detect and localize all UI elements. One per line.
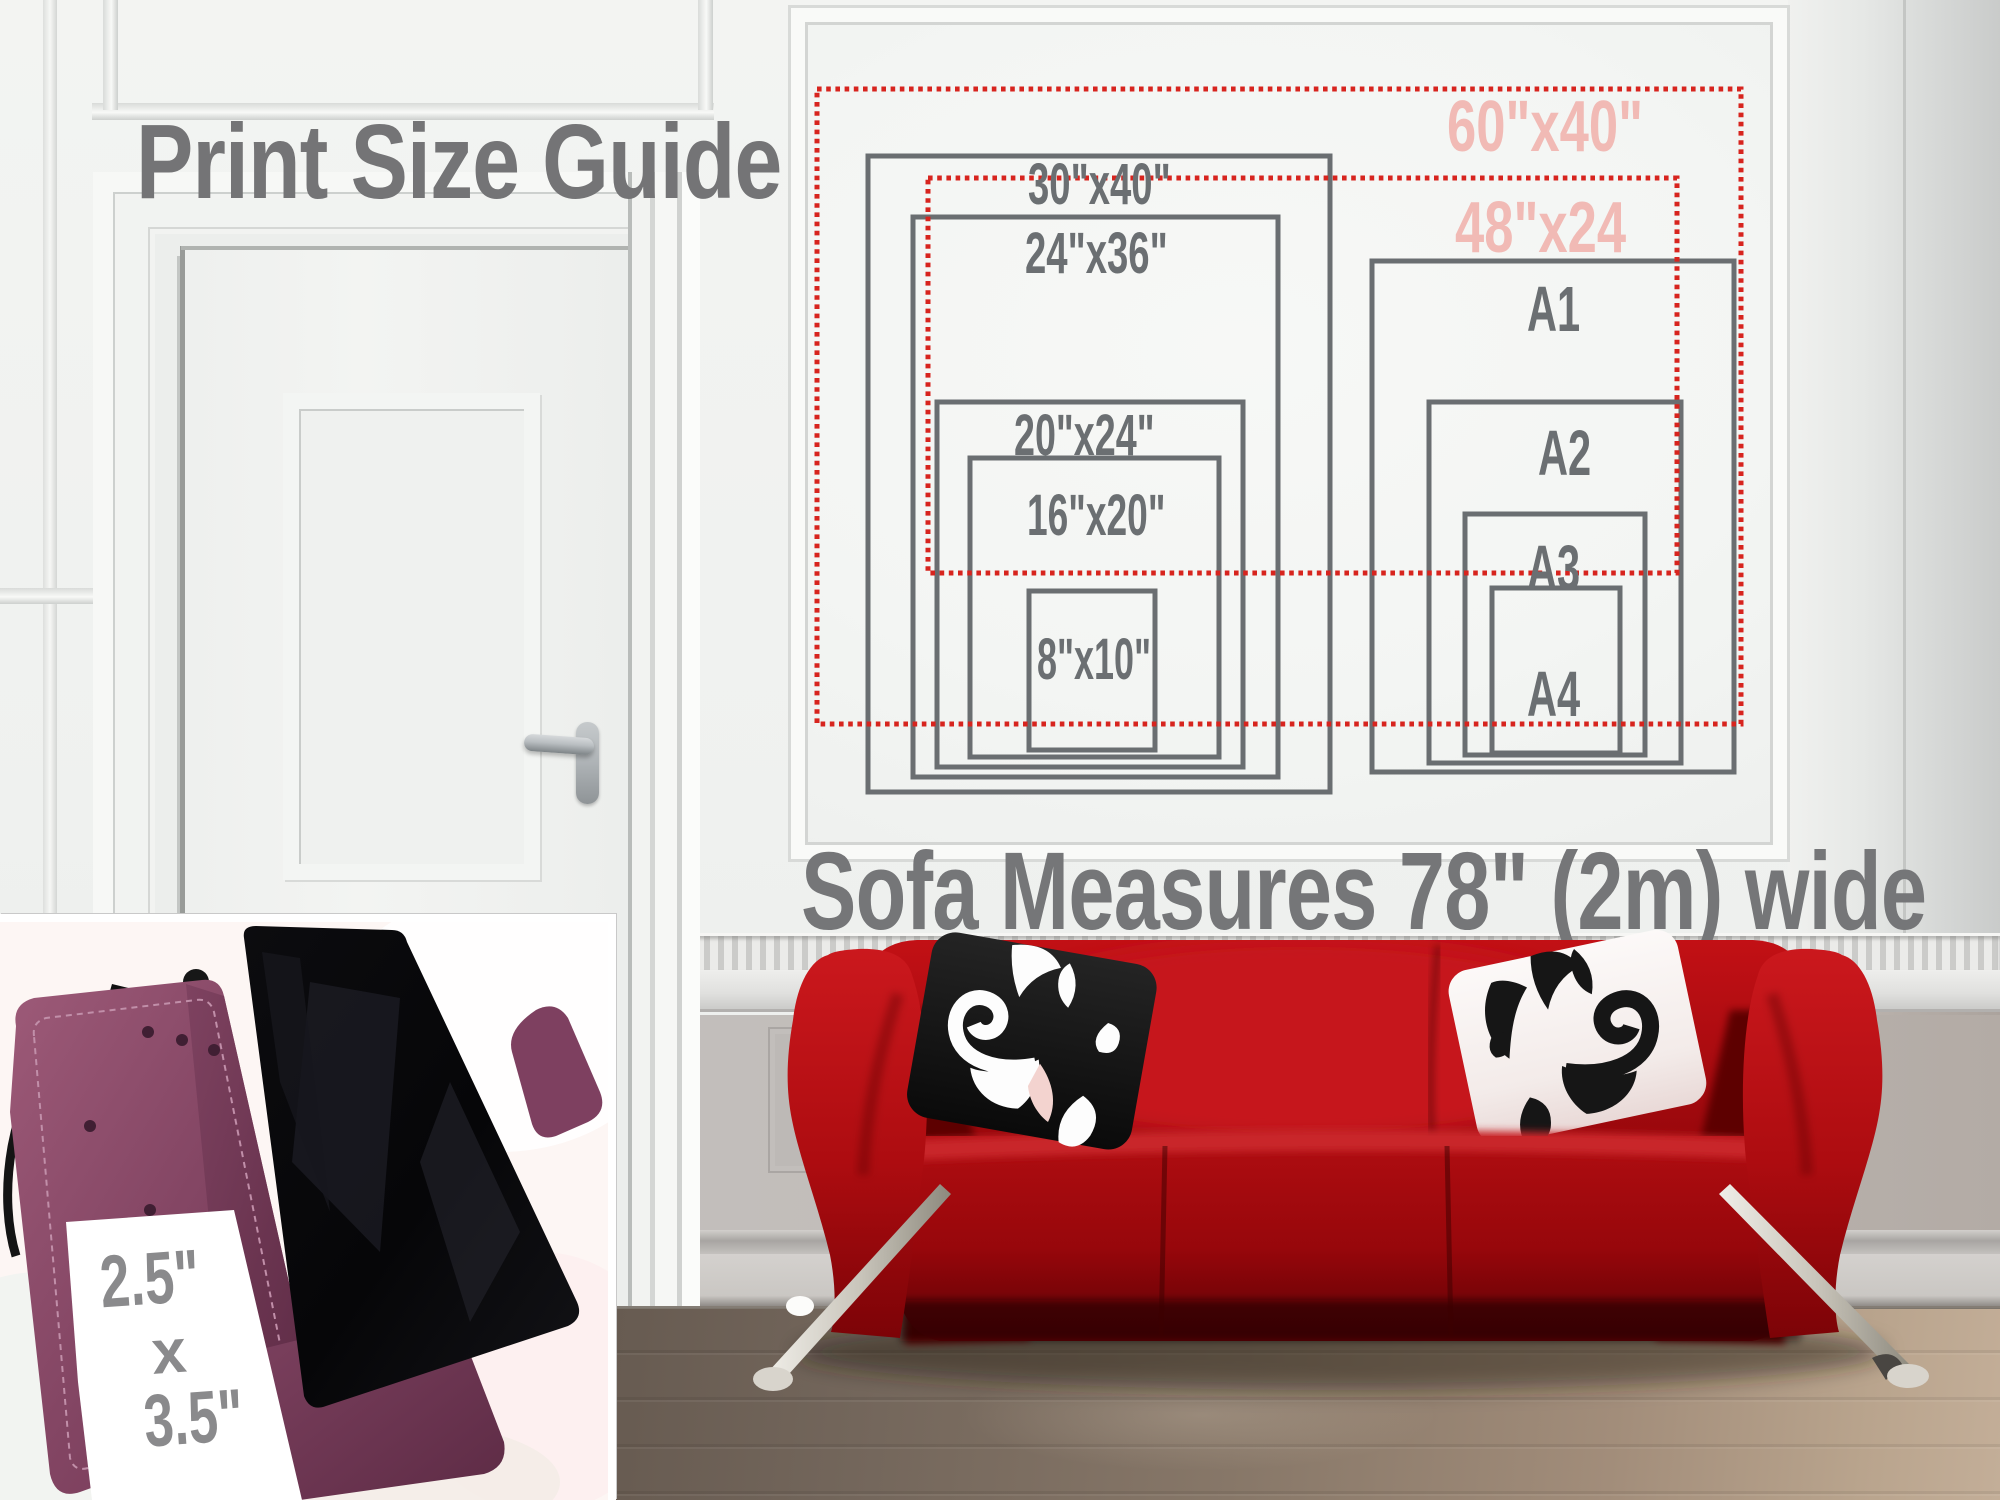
svg-text:3.5": 3.5" (141, 1373, 246, 1462)
svg-text:2.5": 2.5" (97, 1234, 202, 1323)
